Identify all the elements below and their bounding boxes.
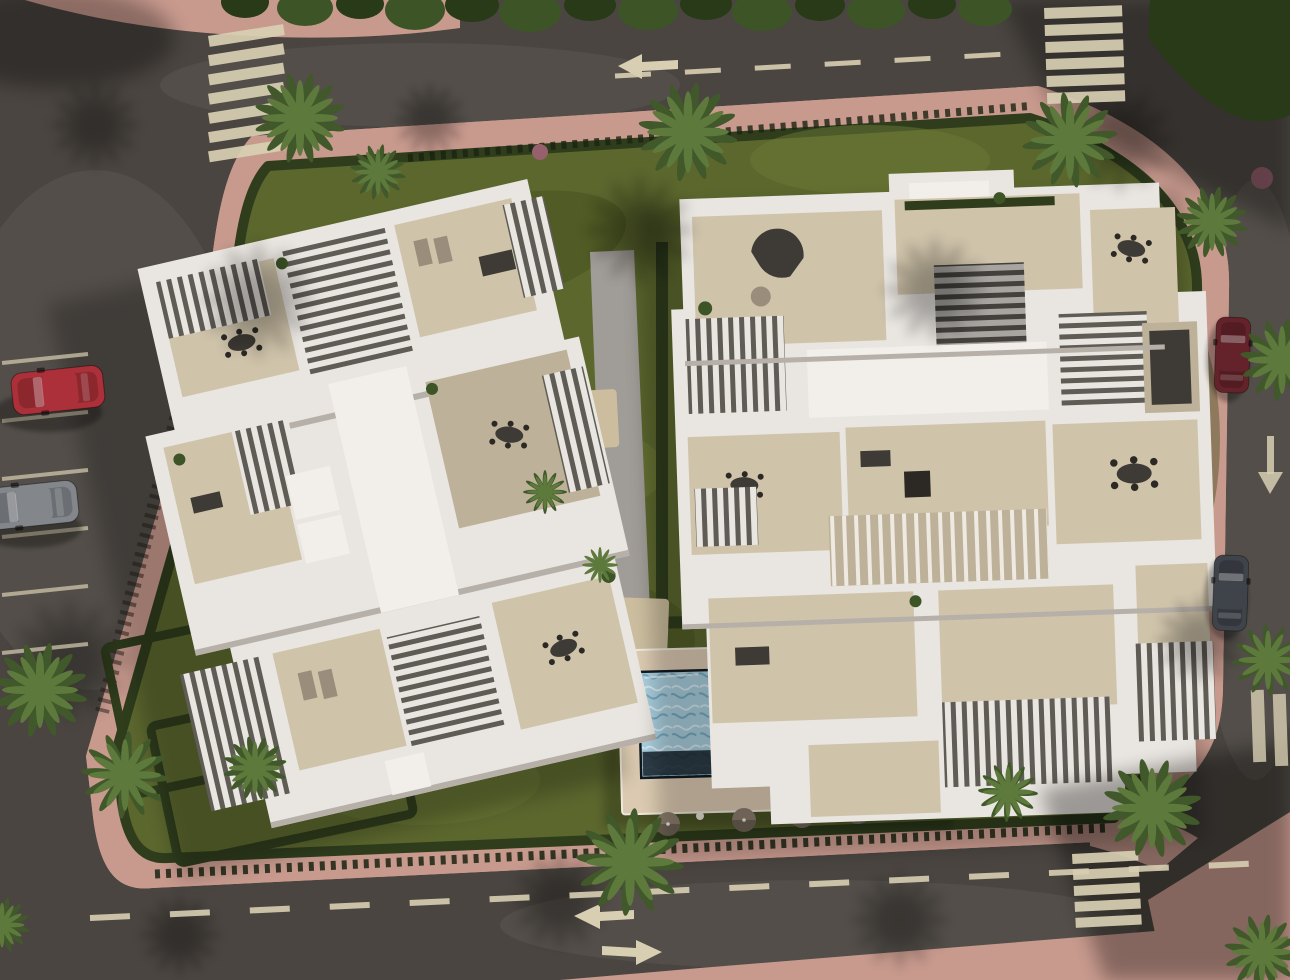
pergola-louvers — [1059, 311, 1150, 406]
gray-car — [1209, 555, 1251, 632]
flower-shrub — [532, 144, 548, 160]
pergola-louvers — [694, 487, 758, 547]
roof-terrace — [808, 741, 940, 817]
roof-terrace — [1090, 207, 1179, 325]
fire-pit — [904, 471, 931, 498]
outdoor-kitchen — [1149, 330, 1192, 405]
outdoor-sofa — [860, 450, 891, 467]
balcony-railing — [828, 509, 1048, 587]
aerial-site-render — [0, 0, 1290, 980]
balcony-louvers — [942, 697, 1113, 788]
outdoor-sofa — [735, 646, 770, 665]
roof-terrace — [938, 584, 1117, 710]
